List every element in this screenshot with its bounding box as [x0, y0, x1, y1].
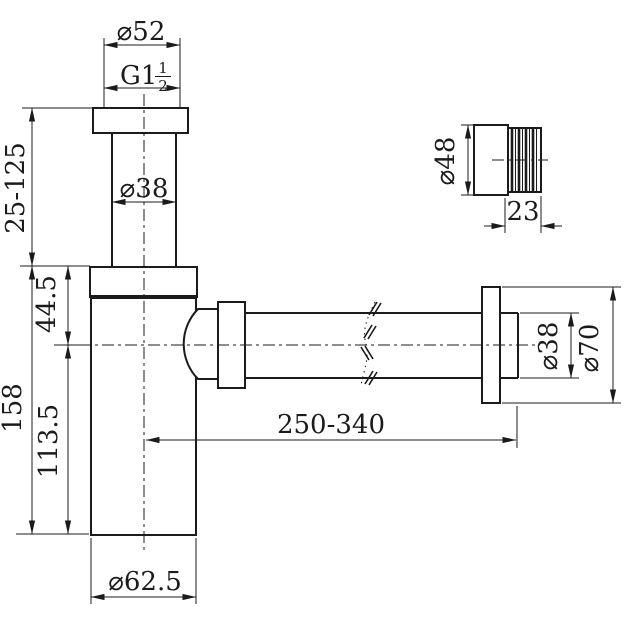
label-top-to-center: 44.5 — [32, 275, 62, 333]
bottle-trap-technical-drawing: ⌀52 G1 1 2 ⌀38 25-125 44.5 158 113.5 ⌀62… — [0, 0, 640, 640]
pipe-break-symbol — [361, 302, 381, 386]
label-wall-connector-length: 23 — [506, 197, 539, 227]
label-flange-diameter: ⌀52 — [117, 17, 166, 47]
label-body-height: 158 — [0, 383, 28, 433]
label-center-to-bottom: 113.5 — [34, 404, 64, 478]
inlet-flange-outline — [93, 108, 188, 133]
label-thread-denominator: 2 — [158, 77, 168, 95]
label-thread-numerator: 1 — [158, 59, 168, 77]
label-adjustable-height: 25-125 — [1, 142, 31, 234]
extension-lines — [16, 38, 621, 604]
label-thread-prefix: G1 — [120, 61, 157, 91]
union-ball-nose — [184, 309, 219, 379]
label-body-diameter: ⌀62.5 — [108, 567, 182, 597]
label-outlet-pipe-diameter: ⌀38 — [534, 322, 564, 371]
label-wall-connector-diameter: ⌀48 — [431, 137, 461, 186]
drawing-svg: ⌀52 G1 1 2 ⌀38 25-125 44.5 158 113.5 ⌀62… — [0, 0, 640, 640]
label-outlet-length: 250-340 — [277, 410, 385, 440]
wall-connector-component — [474, 125, 541, 195]
label-outlet-flange-diameter: ⌀70 — [575, 324, 605, 373]
label-inlet-pipe-diameter: ⌀38 — [120, 174, 169, 204]
